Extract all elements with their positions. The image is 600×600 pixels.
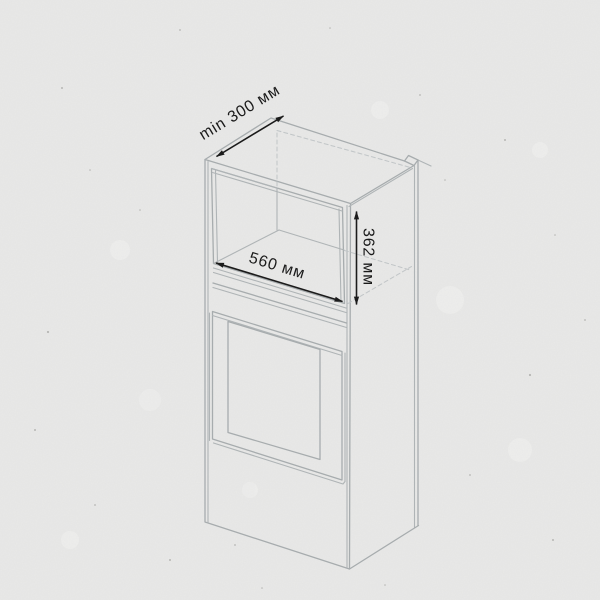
concrete-background xyxy=(0,0,600,600)
height-dimension-label: 362 мм xyxy=(359,228,376,286)
niche-installation-diagram: min 300 мм 560 мм 362 мм xyxy=(0,0,600,600)
grain-overlay xyxy=(0,0,600,600)
installation-diagram-page: Схема встраивания в нишу xyxy=(0,0,600,600)
